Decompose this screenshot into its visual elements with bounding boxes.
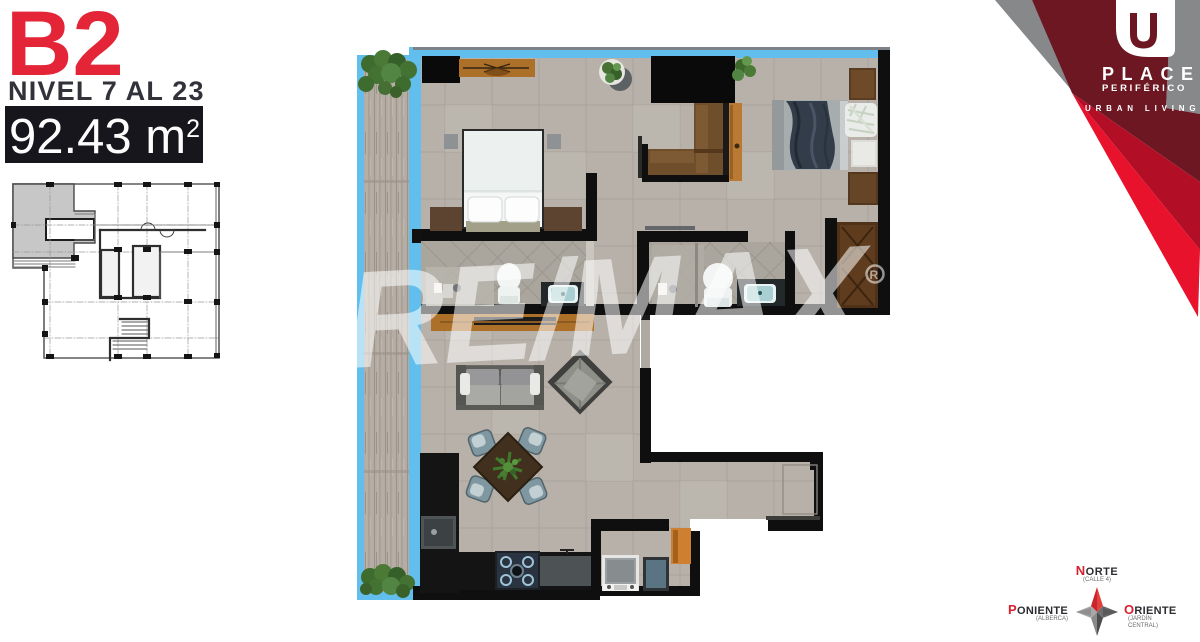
svg-text:R: R [870,268,879,282]
svg-text:RE/MAX: RE/MAX [342,217,878,398]
